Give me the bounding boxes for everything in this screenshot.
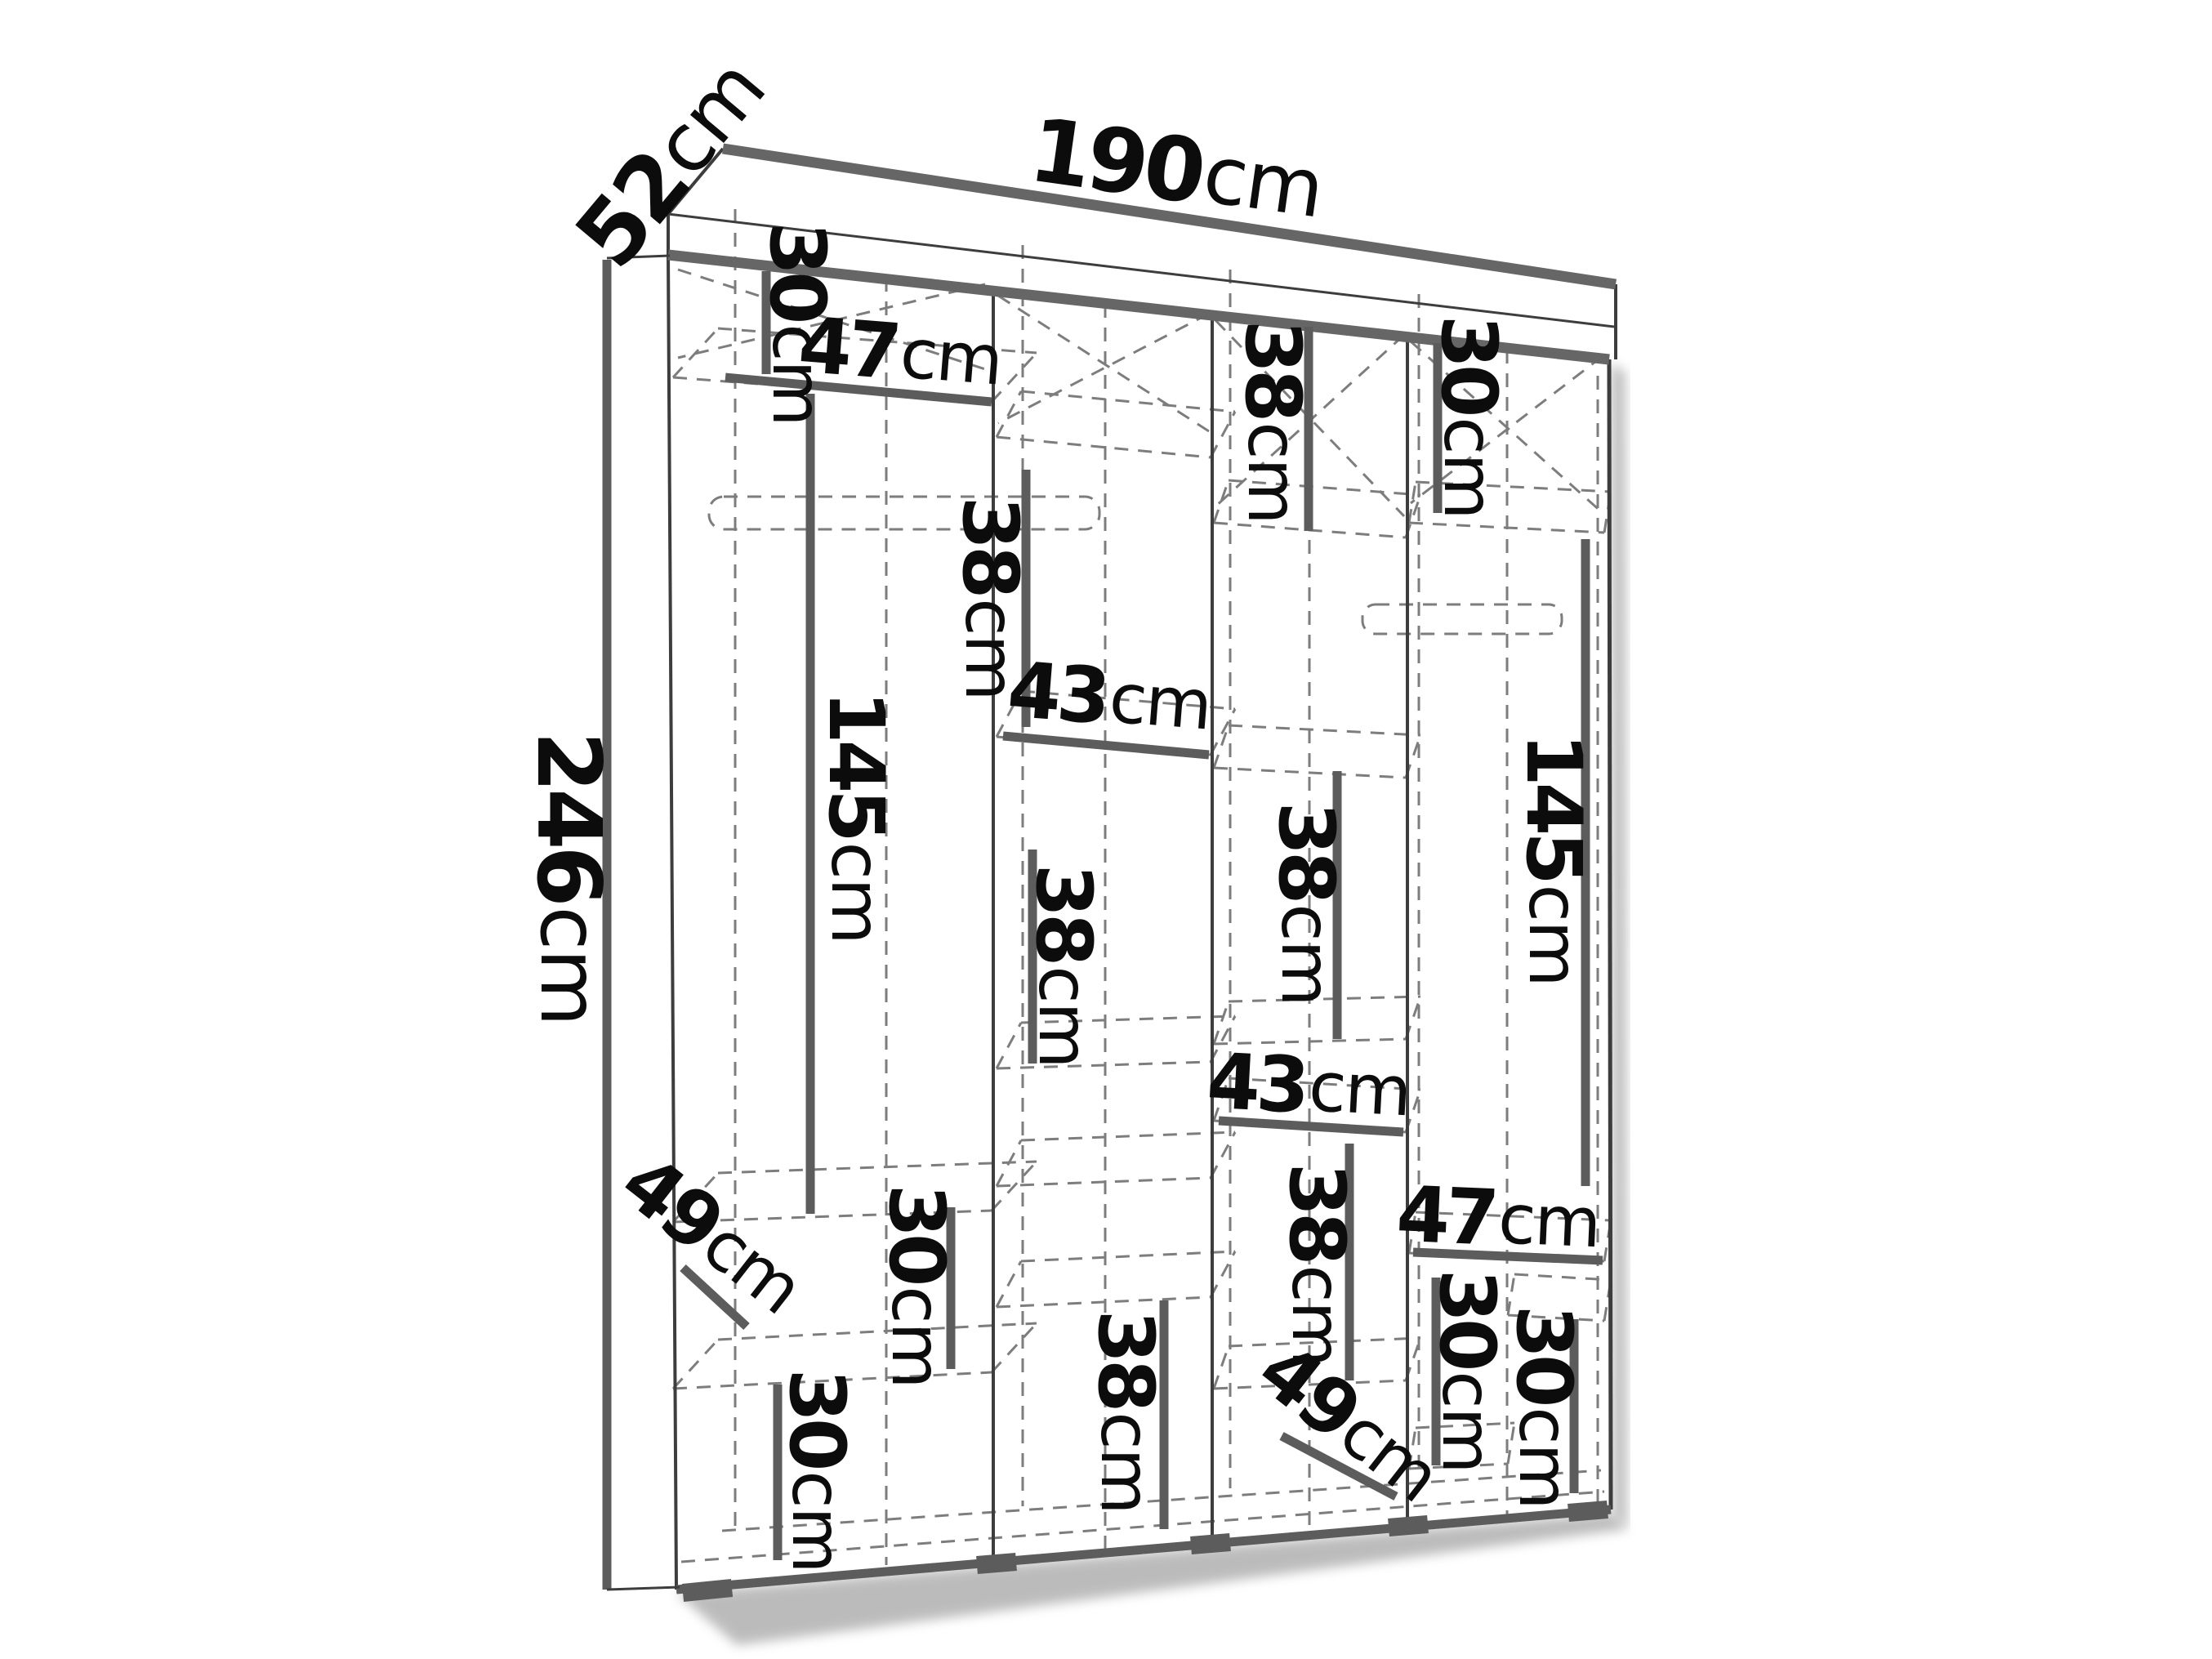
dim-label-col4-top-30cm: 30cm (1425, 315, 1514, 519)
dim-label-col3-top-38cm: 38cm (1229, 320, 1318, 524)
dim-label-height-246cm: 246cm (518, 731, 620, 1025)
diagram-shape (1611, 363, 1627, 1529)
diagram-line (607, 1587, 680, 1590)
diagram-line (1609, 359, 1611, 1510)
dim-label-col4-mid-30cm: 30cm (1423, 1269, 1512, 1473)
diagram-page: 52cm190cm246cm49cm30cm47cm145cm30cm30cm3… (0, 0, 2212, 1659)
diagram-line (977, 1562, 1016, 1565)
diagram-line (683, 1588, 732, 1593)
dim-label-col3-lower-38cm: 38cm (1273, 1163, 1362, 1367)
dim-label-col2-bottom-38cm: 38cm (1081, 1310, 1171, 1514)
dim-label-col3-mid-38cm: 38cm (1262, 802, 1351, 1006)
diagram-line (1568, 1510, 1608, 1513)
dim-label-col4-hanging-145cm: 145cm (1510, 733, 1599, 985)
dim-label-col2-mid-38cm: 38cm (1019, 864, 1108, 1068)
dim-label-col1-bottom-30cm: 30cm (773, 1369, 862, 1572)
wardrobe-dimension-diagram: 52cm190cm246cm49cm30cm47cm145cm30cm30cm3… (0, 0, 2212, 1659)
diagram-line (1389, 1524, 1428, 1527)
diagram-line (1191, 1542, 1230, 1545)
dim-label-col4-bottom-30cm: 30cm (1500, 1305, 1589, 1509)
dim-label-col1-mid-30cm: 30cm (872, 1184, 961, 1388)
dim-label-col1-hanging-145cm: 145cm (812, 690, 901, 943)
